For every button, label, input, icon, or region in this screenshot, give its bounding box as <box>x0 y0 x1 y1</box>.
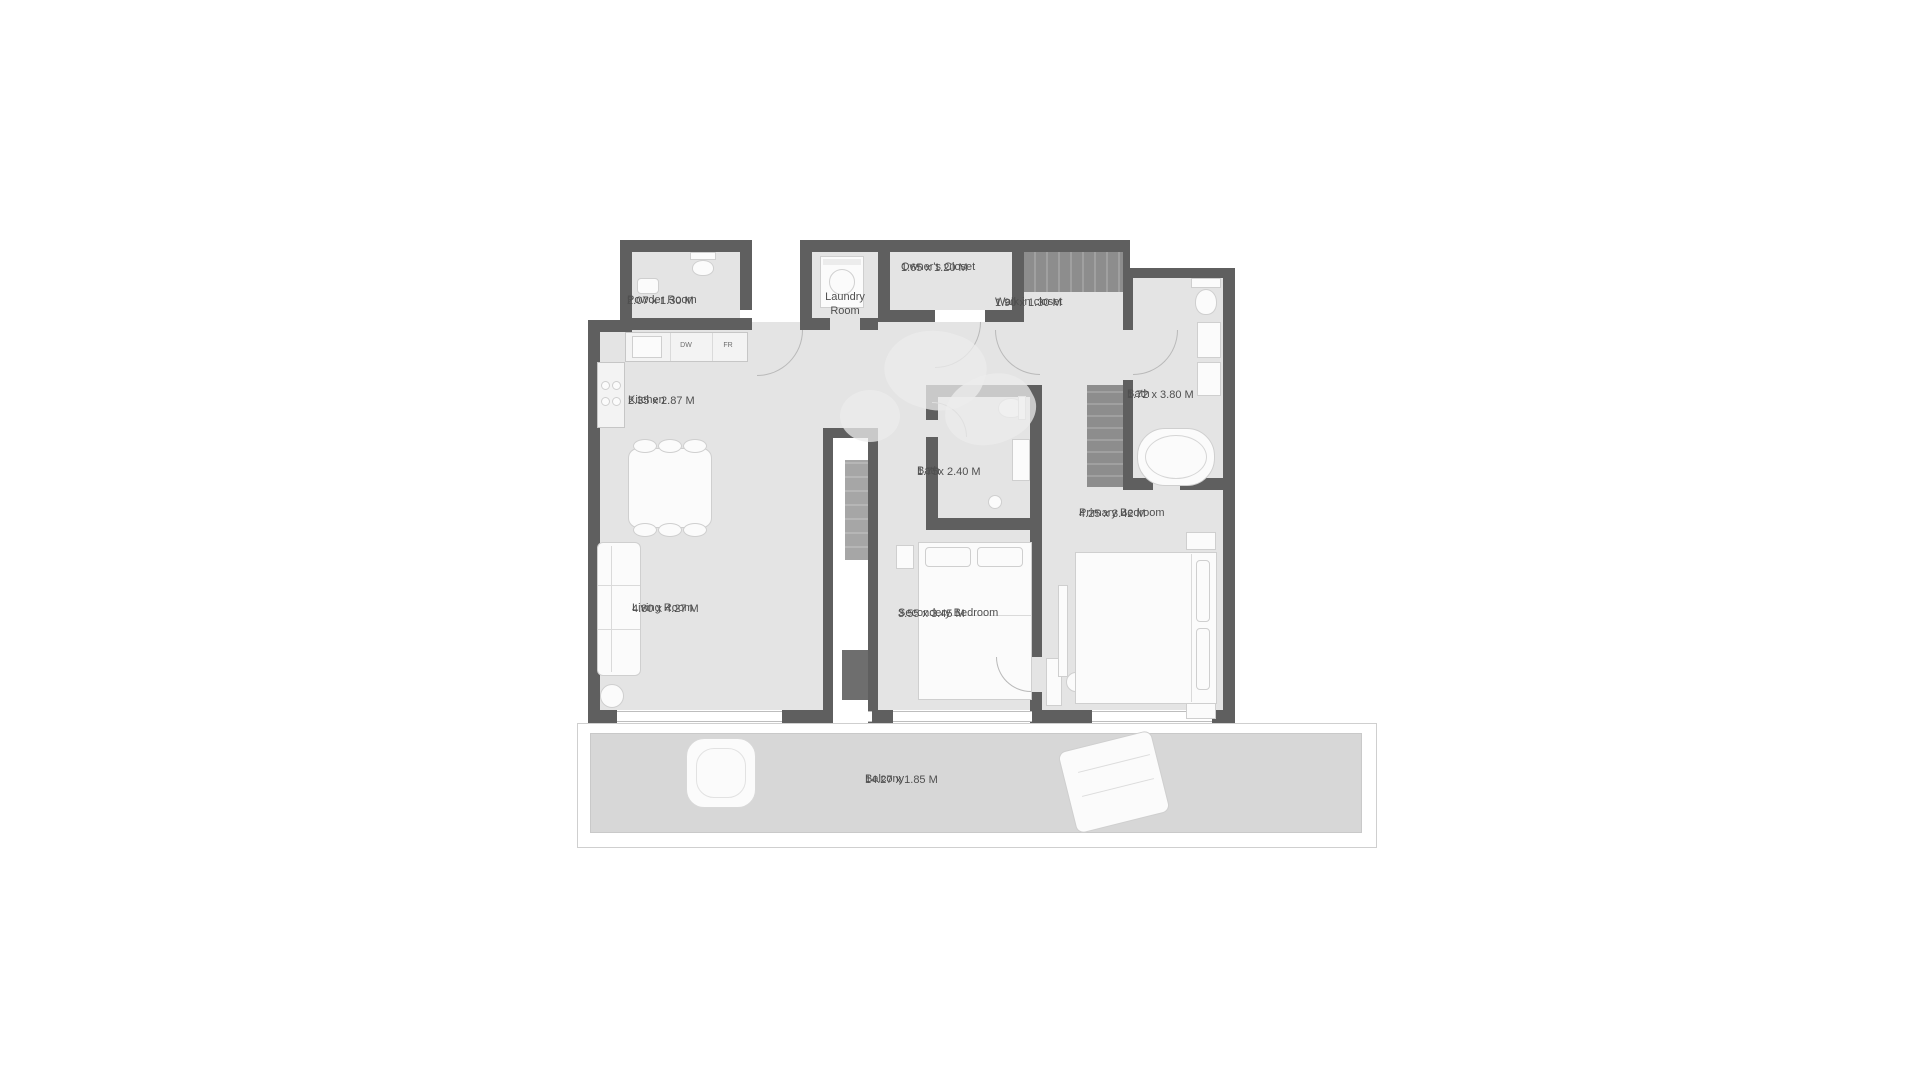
floor-motif <box>840 390 900 442</box>
kitchen-sink-icon <box>632 336 662 358</box>
wall-segment <box>1223 268 1235 723</box>
window <box>617 711 782 722</box>
wall-segment <box>872 710 893 723</box>
counter-divider <box>670 333 671 361</box>
burner-icon <box>612 397 621 406</box>
nightstand <box>1186 703 1216 719</box>
dining-chair <box>658 523 682 537</box>
pillow <box>925 547 971 567</box>
wall-segment <box>926 518 1042 530</box>
dining-chair <box>683 523 707 537</box>
burner-icon <box>612 381 621 390</box>
counter-divider <box>712 333 713 361</box>
wall-segment <box>740 240 752 310</box>
wall-segment <box>782 710 838 723</box>
wardrobe-shelving <box>1024 252 1123 292</box>
vanity-cabinet <box>1197 322 1221 358</box>
burner-icon <box>601 381 610 390</box>
toilet-tank-icon <box>1191 278 1221 288</box>
nightstand <box>1186 532 1216 550</box>
plant-inner <box>696 748 746 798</box>
nightstand <box>896 545 914 569</box>
vanity-cabinet <box>1012 439 1030 481</box>
wall-segment <box>800 240 1130 252</box>
wall-segment <box>1032 710 1092 723</box>
wall-segment <box>878 310 935 322</box>
wall-segment <box>1123 268 1235 278</box>
wall-segment <box>588 710 617 723</box>
pillow <box>977 547 1023 567</box>
wall-segment <box>800 318 830 330</box>
window <box>893 711 1032 722</box>
vanity-cabinet <box>1197 362 1221 396</box>
floor-plan: DW FR <box>585 235 1385 855</box>
wall-segment <box>620 240 752 252</box>
wardrobe-shelving <box>1087 385 1123 487</box>
toilet-tank-icon <box>690 252 716 260</box>
dining-chair <box>633 439 657 453</box>
dining-table <box>628 448 712 528</box>
wall-segment <box>823 428 833 723</box>
cooktop-counter <box>597 362 625 428</box>
wall-segment <box>868 428 878 723</box>
burner-icon <box>601 397 610 406</box>
dining-chair <box>658 439 682 453</box>
toilet-icon <box>1195 289 1217 315</box>
closet-shelf <box>845 460 868 560</box>
dining-chair <box>683 439 707 453</box>
fridge-label: FR <box>715 341 741 351</box>
sofa-seam <box>598 629 640 630</box>
closet-block <box>842 650 868 700</box>
dishwasher-label: DW <box>673 341 699 351</box>
wall-segment <box>926 437 938 530</box>
blanket-seam <box>1191 554 1192 702</box>
washer-controls <box>823 259 861 265</box>
bathtub-basin <box>1145 435 1207 479</box>
shower-drain-icon <box>988 495 1002 509</box>
toilet-icon <box>692 260 714 276</box>
sofa-seam <box>598 585 640 586</box>
sofa-seam <box>611 546 612 672</box>
pillow <box>1196 560 1210 622</box>
wall-segment <box>860 318 878 330</box>
side-table <box>600 684 624 708</box>
sink-icon <box>637 278 659 294</box>
wall-segment <box>1012 252 1024 322</box>
dining-chair <box>633 523 657 537</box>
wall-segment <box>878 252 890 318</box>
bench <box>1058 585 1068 677</box>
pillow <box>1196 628 1210 690</box>
wall-segment <box>620 318 752 330</box>
wall-segment <box>1123 278 1133 330</box>
